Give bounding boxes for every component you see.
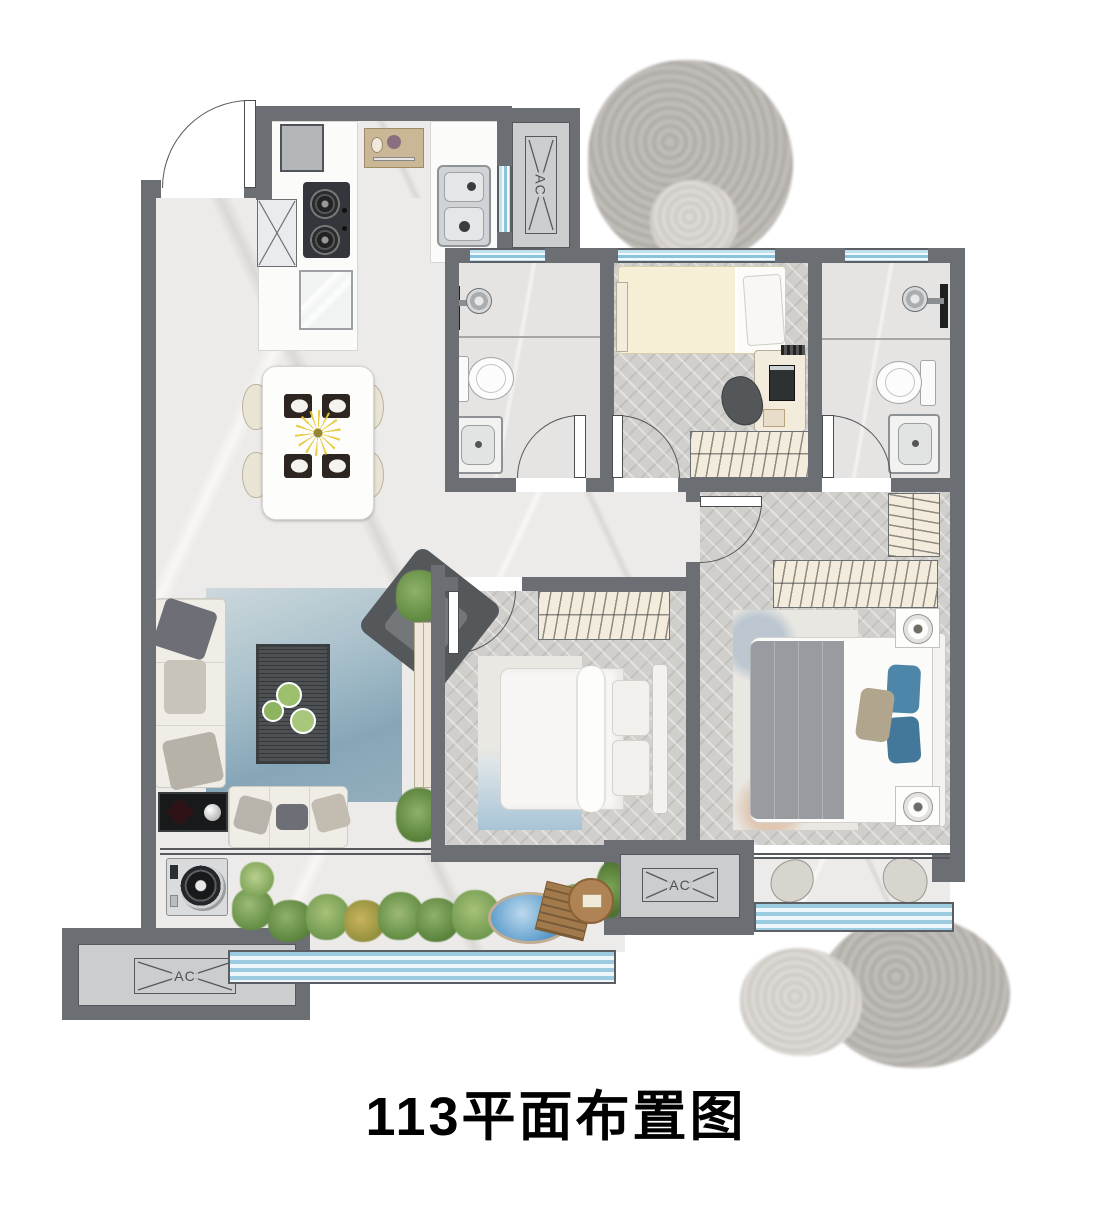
wall-mid-b — [586, 478, 614, 492]
toilet-bowl — [468, 357, 514, 400]
wall-bedroom2-north-b — [522, 577, 686, 591]
wall-bathroom1-left — [445, 263, 459, 478]
washbasin — [888, 414, 940, 474]
oven — [299, 270, 353, 330]
wall-top-band-a — [445, 248, 470, 263]
ac-unit-top: AC — [525, 136, 557, 234]
flower-centerpiece — [295, 410, 341, 456]
toilet-bowl — [876, 361, 922, 404]
single-bed — [618, 266, 786, 354]
burner-icon — [308, 223, 342, 257]
bathroom1-door-leaf — [574, 415, 586, 478]
wall-master-west-a — [686, 492, 700, 502]
bed-pillow — [612, 680, 650, 736]
wall-shelf — [616, 282, 628, 352]
headboard — [652, 664, 668, 814]
shower-mat — [940, 284, 948, 328]
washbasin — [453, 416, 503, 474]
desk — [754, 350, 806, 432]
tray-plate — [290, 708, 316, 734]
shower-divider — [459, 336, 600, 338]
bedroom2-door-leaf — [448, 591, 459, 654]
drain-icon — [467, 182, 476, 191]
plan-title: 113平面布置图 — [0, 1072, 1112, 1151]
sink-bowl-icon — [444, 172, 484, 202]
master-balcony-slider — [754, 853, 950, 859]
wall-bedroom2-west — [431, 565, 445, 848]
gray-blanket — [750, 641, 844, 819]
toilet-tank — [920, 360, 936, 406]
ac-label: AC — [667, 877, 692, 893]
place-setting — [322, 454, 350, 478]
master-door-leaf — [700, 496, 762, 507]
place-setting — [284, 454, 312, 478]
wall-right-outer — [950, 248, 965, 862]
table-items — [582, 894, 602, 908]
duvet — [619, 267, 737, 353]
utility-shaft — [257, 199, 297, 267]
faucet-icon — [912, 440, 919, 447]
desk-papers — [763, 409, 785, 427]
sofa-pillow — [164, 660, 206, 714]
lamp-icon — [903, 792, 933, 822]
balcony2-window — [754, 902, 954, 932]
tree-icon — [740, 948, 862, 1056]
washing-machine — [166, 858, 228, 916]
diamond-decor-icon — [166, 798, 194, 826]
garden-table — [568, 878, 614, 924]
dresser-bookshelf — [773, 560, 938, 608]
shower-head-icon — [902, 286, 928, 312]
bowl-icon — [371, 137, 383, 153]
entry-door-leaf — [244, 100, 256, 188]
side-table — [158, 792, 228, 832]
balcony1-window — [228, 950, 616, 984]
lamp-icon — [903, 614, 933, 644]
burner-icon — [308, 187, 342, 221]
bathroom2-door-leaf — [822, 415, 834, 478]
kitchen-window — [497, 166, 512, 232]
washer-drum-icon — [180, 865, 226, 911]
wall-kitchen-right-a — [497, 121, 512, 166]
double-bed — [500, 666, 670, 812]
shower-divider — [822, 338, 950, 340]
toilet-seat — [885, 368, 915, 397]
bed-pillow-tan — [855, 687, 896, 743]
desk-books — [781, 345, 805, 355]
living-balcony-slider — [160, 848, 431, 855]
wardrobe — [690, 431, 810, 478]
wall-bedroom2-bottom — [431, 845, 628, 862]
monitor-icon — [769, 365, 795, 401]
knife-icon — [373, 157, 415, 161]
entry-door-swing — [162, 100, 250, 188]
nightstand — [895, 608, 940, 648]
wall-top-band-c — [775, 248, 845, 263]
toilet-seat — [476, 364, 506, 393]
wall-mid-a — [445, 478, 516, 492]
gas-stove — [303, 182, 350, 258]
wall-kitchen-top — [256, 106, 512, 121]
faucet-icon — [475, 441, 482, 448]
kitchen-sink — [437, 165, 491, 247]
washer-controls — [170, 865, 178, 879]
range-hood — [280, 124, 324, 172]
shaft-x-icon — [258, 200, 296, 266]
corridor-floor — [445, 492, 700, 577]
drain-icon — [459, 221, 470, 232]
wall-top-band-b — [545, 248, 618, 263]
bed-pillow — [743, 274, 786, 346]
wall-left-outer — [141, 198, 156, 934]
nightstand — [895, 786, 940, 826]
wall-smallbed-bathroom2 — [808, 263, 822, 492]
wardrobe — [888, 493, 940, 557]
ac-label: AC — [172, 968, 197, 984]
wall-entry-stub-left — [141, 180, 161, 198]
floor-plan: AC AC AC — [0, 0, 1112, 1216]
duvet-fold — [576, 666, 606, 812]
wall-kitchen-left — [256, 106, 272, 200]
ac-unit-bottom-left: AC — [134, 958, 236, 994]
tray-plate — [262, 700, 284, 722]
cutting-board — [364, 128, 424, 168]
plate-icon — [387, 135, 401, 149]
washer-controls — [170, 895, 178, 907]
wardrobe — [538, 591, 670, 640]
sofa-pillow — [276, 804, 308, 830]
sphere-decor-icon — [204, 804, 221, 821]
shower-head-icon — [466, 288, 492, 314]
bathroom1-window — [470, 248, 545, 263]
stove-knob — [342, 208, 347, 213]
ac-unit-bottom-mid: AC — [642, 868, 718, 902]
wall-mid-c — [678, 478, 822, 492]
ac-label: AC — [533, 172, 549, 197]
stove-knob — [342, 226, 347, 231]
wall-master-west-b — [686, 562, 700, 845]
bed-pillow — [612, 740, 650, 796]
wall-mid-d — [891, 478, 950, 492]
wall-bedroom2-north-a — [445, 577, 458, 591]
small-bedroom-window — [618, 248, 775, 263]
small-bedroom-door-leaf — [612, 415, 623, 478]
plan-title-text: 113平面布置图 — [365, 1087, 746, 1147]
bathroom2-window — [845, 248, 928, 263]
